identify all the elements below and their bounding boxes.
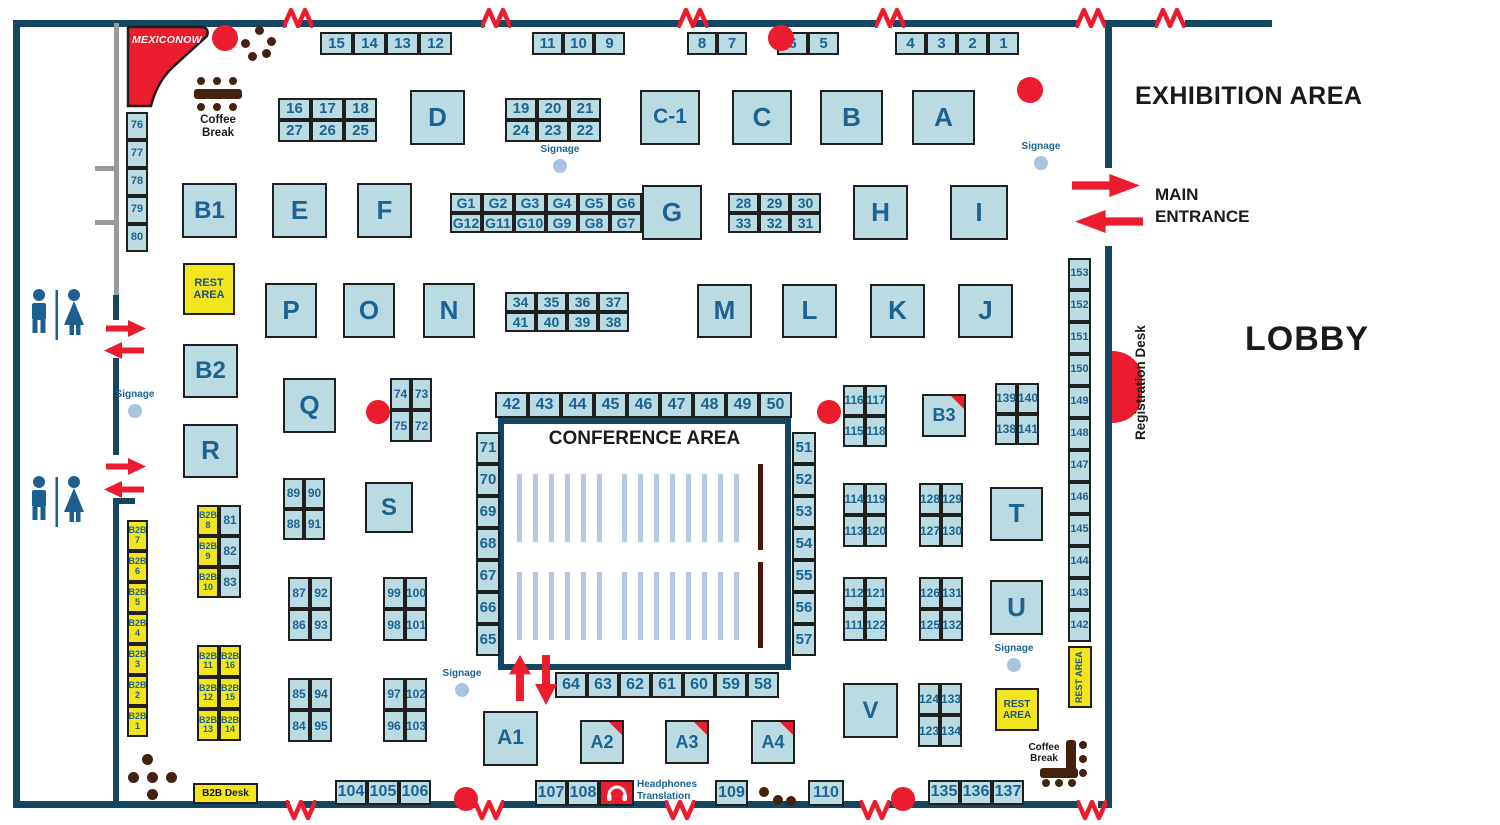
booth-10[interactable]: 10 [563,32,594,55]
booth-150[interactable]: 150 [1068,354,1091,386]
booth-45[interactable]: 45 [594,392,627,418]
booth-94[interactable]: 94 [310,678,332,710]
booth-13[interactable]: 13 [386,32,419,55]
coffee-seat-dot-icon [197,77,205,85]
booth-S[interactable]: S [365,482,413,533]
booth-O[interactable]: O [343,283,395,338]
conference-chair-row [702,572,707,640]
booth-39[interactable]: 39 [567,312,598,332]
conference-chair-row [517,572,522,640]
booth-125[interactable]: 125 [919,609,941,641]
conference-chair-row [565,572,570,640]
booth-117[interactable]: 117 [865,385,887,416]
booth-114[interactable]: 114 [843,483,865,515]
booth-48[interactable]: 48 [693,392,726,418]
booth-56[interactable]: 56 [792,592,816,624]
booth-59[interactable]: 59 [715,672,747,698]
booth-17[interactable]: 17 [311,98,344,120]
booth-118[interactable]: 118 [865,416,887,447]
conference-area-title: CONFERENCE AREA [498,428,791,450]
booth-A1[interactable]: A1 [483,711,538,766]
booth-A4[interactable]: A4 [751,720,795,764]
coffee-seat-dot-icon [128,772,139,783]
booth-91[interactable]: 91 [304,509,325,540]
booth-42[interactable]: 42 [495,392,528,418]
booth-50[interactable]: 50 [759,392,792,418]
booth-33[interactable]: 33 [728,213,759,233]
booth-25[interactable]: 25 [344,120,377,142]
booth-B2B-10[interactable]: B2B 10 [197,567,219,598]
booth-35[interactable]: 35 [536,292,567,312]
booth-G10[interactable]: G10 [514,213,546,233]
wall-opening-zigzag-icon [665,800,695,822]
booth-65[interactable]: 65 [476,624,500,656]
booth-B2B-14[interactable]: B2B 14 [219,709,241,741]
exhibition-area-label: EXHIBITION AREA [1135,82,1362,111]
booth-99[interactable]: 99 [383,577,405,609]
booth-L[interactable]: L [782,284,837,338]
conference-chair-row [718,474,723,542]
booth-123[interactable]: 123 [918,715,940,747]
coffee-seat-dot-icon [773,795,783,805]
booth-152[interactable]: 152 [1068,290,1091,322]
conference-chair-row [597,572,602,640]
booth-C-1[interactable]: C-1 [640,90,700,145]
booth-62[interactable]: 62 [619,672,651,698]
booth-29[interactable]: 29 [759,193,790,213]
booth-127[interactable]: 127 [919,515,941,547]
booth-B2B-8[interactable]: B2B 8 [197,505,219,536]
restroom-icon [26,475,90,533]
booth-T[interactable]: T [990,487,1043,541]
booth-G11[interactable]: G11 [482,213,514,233]
booth-145[interactable]: 145 [1068,514,1091,546]
conference-chair-row [702,474,707,542]
coffee-seat-dot-icon [1079,741,1087,749]
conference-chair-row [686,474,691,542]
booth-20[interactable]: 20 [537,98,569,120]
booth-8[interactable]: 8 [687,32,717,55]
booth-105[interactable]: 105 [367,780,399,805]
booth-B1[interactable]: B1 [182,183,237,238]
booth-4[interactable]: 4 [895,32,926,55]
conference-chair-row [533,474,538,542]
booth-D[interactable]: D [410,90,465,145]
booth-151[interactable]: 151 [1068,322,1091,354]
wall-segment [113,498,135,504]
booth-135[interactable]: 135 [928,780,960,805]
wall-opening-zigzag-icon [1155,6,1185,28]
booth-83[interactable]: 83 [219,567,241,598]
booth-122[interactable]: 122 [865,609,887,641]
booth-27[interactable]: 27 [278,120,311,142]
signage-dot-icon [1007,658,1021,672]
booth-97[interactable]: 97 [383,678,405,710]
booth-134[interactable]: 134 [940,715,962,747]
coffee-seat-dot-icon [147,772,158,783]
coffee-table-icon [1040,768,1078,778]
conference-chair-row [638,474,643,542]
booth-107[interactable]: 107 [535,780,567,806]
booth-26[interactable]: 26 [311,120,344,142]
red-dot-marker [891,787,915,811]
booth-46[interactable]: 46 [627,392,660,418]
booth-34[interactable]: 34 [505,292,536,312]
booth-49[interactable]: 49 [726,392,759,418]
booth-V[interactable]: V [843,683,898,738]
booth-J[interactable]: J [958,284,1013,338]
wall-opening-zigzag-icon [860,800,890,822]
booth-144[interactable]: 144 [1068,546,1091,578]
booth-C[interactable]: C [732,90,792,145]
booth-55[interactable]: 55 [792,560,816,592]
booth-54[interactable]: 54 [792,528,816,560]
booth-Q[interactable]: Q [283,378,336,433]
booth-116[interactable]: 116 [843,385,865,416]
coffee-break-label: Coffee Break [186,114,250,139]
booth-121[interactable]: 121 [865,577,887,609]
booth-141[interactable]: 141 [1017,414,1039,445]
booth-14[interactable]: 14 [353,32,386,55]
booth-103[interactable]: 103 [405,710,427,742]
wall-opening-zigzag-icon [481,6,511,28]
booth-72[interactable]: 72 [411,410,432,442]
booth-H[interactable]: H [853,185,908,240]
booth-B2B-12[interactable]: B2B 12 [197,677,219,709]
booth-G12[interactable]: G12 [450,213,482,233]
coffee-seat-dot-icon [241,39,250,48]
booth-119[interactable]: 119 [865,483,887,515]
booth-128[interactable]: 128 [919,483,941,515]
booth-G8[interactable]: G8 [578,213,610,233]
booth-2[interactable]: 2 [957,32,988,55]
booth-23[interactable]: 23 [537,120,569,142]
booth-66[interactable]: 66 [476,592,500,624]
wall-segment [13,20,20,808]
restroom-icon [26,288,90,346]
signage-label: Signage [982,643,1046,654]
booth-110[interactable]: 110 [808,780,844,806]
booth-61[interactable]: 61 [651,672,683,698]
booth-19[interactable]: 19 [505,98,537,120]
arrow-left-icon [104,481,144,498]
booth-69[interactable]: 69 [476,496,500,528]
booth-40[interactable]: 40 [536,312,567,332]
coffee-seat-dot-icon [147,789,158,800]
booth-U[interactable]: U [990,580,1043,635]
booth-B2B-7[interactable]: B2B 7 [127,520,148,551]
booth-G6[interactable]: G6 [610,193,642,213]
wall-segment [300,20,485,27]
booth-B2[interactable]: B2 [183,344,238,398]
booth-82[interactable]: 82 [219,536,241,567]
coffee-seat-dot-icon [759,787,769,797]
booth-76[interactable]: 76 [126,112,148,140]
booth-G[interactable]: G [642,185,702,240]
booth-71[interactable]: 71 [476,432,500,464]
booth-142[interactable]: 142 [1068,610,1091,642]
booth-131[interactable]: 131 [941,577,963,609]
conference-area [498,418,791,670]
booth-53[interactable]: 53 [792,496,816,528]
booth-18[interactable]: 18 [344,98,377,120]
registration-desk-label: Registration Desk [1133,298,1153,468]
booth-137[interactable]: 137 [992,780,1024,805]
conference-chair-row [734,474,739,542]
booth-41[interactable]: 41 [505,312,536,332]
booth-16[interactable]: 16 [278,98,311,120]
booth-30[interactable]: 30 [790,193,821,213]
booth-153[interactable]: 153 [1068,258,1091,290]
wall-opening-zigzag-icon [1076,6,1106,28]
booth-B2B-1[interactable]: B2B 1 [127,706,148,737]
booth-28[interactable]: 28 [728,193,759,213]
booth-78[interactable]: 78 [126,168,148,196]
coffee-seat-dot-icon [1055,779,1063,787]
wall-segment [113,358,119,455]
booth-G3[interactable]: G3 [514,193,546,213]
wall-opening-zigzag-icon [474,800,504,822]
booth-I[interactable]: I [950,185,1008,240]
booth-106[interactable]: 106 [399,780,431,805]
coffee-table-icon [194,89,242,99]
booth-129[interactable]: 129 [941,483,963,515]
booth-1[interactable]: 1 [988,32,1019,55]
booth-A3[interactable]: A3 [665,720,709,764]
coffee-seat-dot-icon [786,796,796,806]
main-entrance-label: MAIN ENTRANCE [1155,184,1249,228]
booth-11[interactable]: 11 [532,32,563,55]
coffee-seat-dot-icon [197,103,205,111]
coffee-seat-dot-icon [229,77,237,85]
wall-segment [113,498,119,802]
booth-104[interactable]: 104 [335,780,367,805]
coffee-break-label: Coffee Break [1022,742,1066,764]
booth-80[interactable]: 80 [126,224,148,252]
booth-31[interactable]: 31 [790,213,821,233]
signage-dot-icon [128,404,142,418]
booth-R[interactable]: R [183,424,238,478]
booth-146[interactable]: 146 [1068,482,1091,514]
coffee-seat-dot-icon [255,26,264,35]
booth-75[interactable]: 75 [390,410,411,442]
booth-5[interactable]: 5 [808,32,839,55]
wall-segment [113,295,119,320]
conference-chair-row [549,572,554,640]
booth-B2B-6[interactable]: B2B 6 [127,551,148,582]
booth-B2B-11[interactable]: B2B 11 [197,645,219,677]
booth-B2B-16[interactable]: B2B 16 [219,645,241,677]
booth-138[interactable]: 138 [995,414,1017,445]
booth-B3[interactable]: B3 [922,394,966,437]
booth-140[interactable]: 140 [1017,383,1039,414]
coffee-seat-dot-icon [1079,755,1087,763]
booth-70[interactable]: 70 [476,464,500,496]
booth-88[interactable]: 88 [283,509,304,540]
booth-A2[interactable]: A2 [580,720,624,764]
booth-51[interactable]: 51 [792,432,816,464]
booth-22[interactable]: 22 [569,120,601,142]
booth-101[interactable]: 101 [405,609,427,641]
booth-93[interactable]: 93 [310,609,332,641]
booth-84[interactable]: 84 [288,710,310,742]
booth-G7[interactable]: G7 [610,213,642,233]
conference-chair-row [734,572,739,640]
wall-segment [1105,246,1112,808]
rest-area[interactable]: REST AREA [995,688,1039,731]
rest-area[interactable]: REST AREA [183,263,235,315]
booth-K[interactable]: K [870,284,925,338]
booth-G5[interactable]: G5 [578,193,610,213]
booth-109[interactable]: 109 [715,780,748,806]
booth-102[interactable]: 102 [405,678,427,710]
booth-B2B-2[interactable]: B2B 2 [127,675,148,706]
conference-chair-row [565,474,570,542]
booth-68[interactable]: 68 [476,528,500,560]
booth-100[interactable]: 100 [405,577,427,609]
booth-E[interactable]: E [272,183,327,238]
booth-G1[interactable]: G1 [450,193,482,213]
booth-B2B-3[interactable]: B2B 3 [127,644,148,675]
booth-32[interactable]: 32 [759,213,790,233]
booth-15[interactable]: 15 [320,32,353,55]
booth-90[interactable]: 90 [304,478,325,509]
booth-F[interactable]: F [357,183,412,238]
coffee-seat-dot-icon [1042,779,1050,787]
booth-148[interactable]: 148 [1068,418,1091,450]
signage-dot-icon [1034,156,1048,170]
booth-124[interactable]: 124 [918,683,940,715]
booth-43[interactable]: 43 [528,392,561,418]
booth-58[interactable]: 58 [747,672,779,698]
booth-57[interactable]: 57 [792,624,816,656]
arrow-right-icon [106,458,146,475]
booth-B[interactable]: B [820,90,883,145]
headphones-icon [599,780,634,806]
coffee-seat-dot-icon [1079,769,1087,777]
booth-A[interactable]: A [912,90,975,145]
booth-3[interactable]: 3 [926,32,957,55]
booth-85[interactable]: 85 [288,678,310,710]
booth-B2B-9[interactable]: B2B 9 [197,536,219,567]
wall-segment [498,20,680,27]
signage-dot-icon [553,159,567,173]
booth-86[interactable]: 86 [288,609,310,641]
booth-79[interactable]: 79 [126,196,148,224]
conference-chair-row [670,474,675,542]
booth-139[interactable]: 139 [995,383,1017,414]
booth-M[interactable]: M [697,284,752,338]
booth-37[interactable]: 37 [598,292,629,312]
booth-120[interactable]: 120 [865,515,887,547]
booth-38[interactable]: 38 [598,312,629,332]
booth-36[interactable]: 36 [567,292,598,312]
booth-126[interactable]: 126 [919,577,941,609]
booth-B2B-4[interactable]: B2B 4 [127,613,148,644]
booth-115[interactable]: 115 [843,416,865,447]
coffee-seat-dot-icon [248,52,257,61]
signage-dot-icon [455,683,469,697]
mexiconow-brand-label: MEXICONOW [132,34,202,46]
booth-12[interactable]: 12 [419,32,452,55]
conference-chair-row [638,572,643,640]
booth-64[interactable]: 64 [555,672,587,698]
signage-label: Signage [528,144,592,155]
booth-149[interactable]: 149 [1068,386,1091,418]
booth-B2B-5[interactable]: B2B 5 [127,582,148,613]
booth-112[interactable]: 112 [843,577,865,609]
coffee-seat-dot-icon [229,103,237,111]
booth-136[interactable]: 136 [960,780,992,805]
wall-opening-zigzag-icon [875,6,905,28]
booth-G4[interactable]: G4 [546,193,578,213]
booth-G9[interactable]: G9 [546,213,578,233]
booth-24[interactable]: 24 [505,120,537,142]
booth-77[interactable]: 77 [126,140,148,168]
booth-7[interactable]: 7 [717,32,747,55]
lobby-label: LOBBY [1245,320,1369,359]
booth-113[interactable]: 113 [843,515,865,547]
conference-stage-line [758,464,763,550]
booth-73[interactable]: 73 [411,378,432,410]
booth-81[interactable]: 81 [219,505,241,536]
booth-44[interactable]: 44 [561,392,594,418]
booth-G2[interactable]: G2 [482,193,514,213]
booth-108[interactable]: 108 [567,780,599,806]
booth-N[interactable]: N [423,283,475,338]
coffee-seat-dot-icon [213,103,221,111]
conference-chair-row [517,474,522,542]
booth-98[interactable]: 98 [383,609,405,641]
booth-133[interactable]: 133 [940,683,962,715]
booth-147[interactable]: 147 [1068,450,1091,482]
signage-label: Signage [103,389,167,400]
booth-9[interactable]: 9 [594,32,625,55]
booth-96[interactable]: 96 [383,710,405,742]
booth-132[interactable]: 132 [941,609,963,641]
booth-130[interactable]: 130 [941,515,963,547]
booth-21[interactable]: 21 [569,98,601,120]
booth-60[interactable]: 60 [683,672,715,698]
signage-label: Signage [1009,141,1073,152]
conference-stage-line [758,562,763,648]
booth-P[interactable]: P [265,283,317,338]
conference-chair-row [670,572,675,640]
booth-92[interactable]: 92 [310,577,332,609]
booth-143[interactable]: 143 [1068,578,1091,610]
booth-67[interactable]: 67 [476,560,500,592]
booth-111[interactable]: 111 [843,609,865,641]
booth-95[interactable]: 95 [310,710,332,742]
red-dot-marker [768,25,794,51]
rest-area[interactable]: REST AREA [1068,646,1092,708]
booth-47[interactable]: 47 [660,392,693,418]
booth-52[interactable]: 52 [792,464,816,496]
booth-74[interactable]: 74 [390,378,411,410]
conference-chair-row [654,474,659,542]
wall-opening-zigzag-icon [286,800,316,822]
conference-chair-row [597,474,602,542]
booth-87[interactable]: 87 [288,577,310,609]
booth-B2B-15[interactable]: B2B 15 [219,677,241,709]
booth-63[interactable]: 63 [587,672,619,698]
booth-B2B-13[interactable]: B2B 13 [197,709,219,741]
wall-opening-zigzag-icon [1077,800,1107,822]
b2b-desk[interactable]: B2B Desk [193,783,258,804]
booth-89[interactable]: 89 [283,478,304,509]
coffee-seat-dot-icon [213,77,221,85]
red-dot-marker [366,400,390,424]
